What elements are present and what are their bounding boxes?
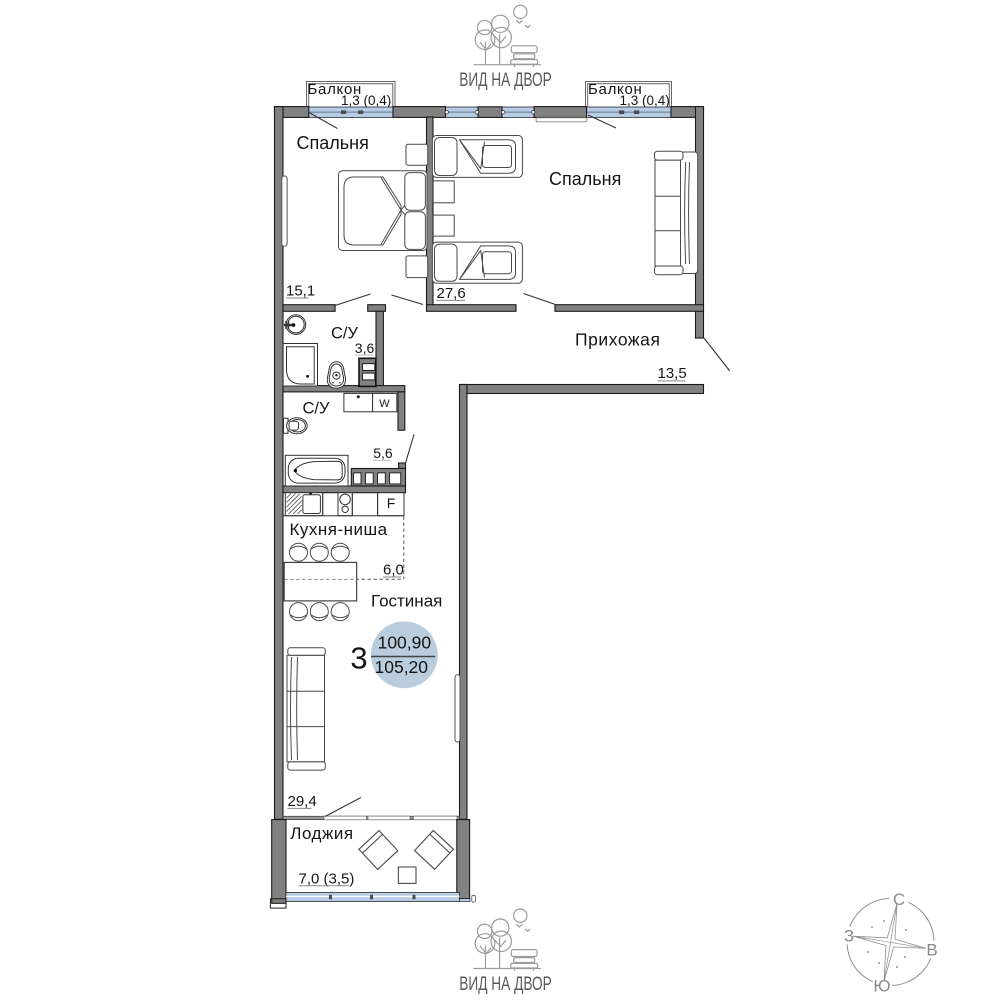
svg-text:С/У: С/У (303, 400, 331, 418)
svg-text:29,4: 29,4 (288, 793, 317, 810)
svg-text:3,6: 3,6 (355, 340, 375, 356)
svg-text:Кухня-ниша: Кухня-ниша (290, 520, 388, 539)
svg-text:100,90: 100,90 (378, 632, 432, 652)
svg-text:7,0 (3,5): 7,0 (3,5) (299, 870, 355, 887)
svg-text:5,6: 5,6 (373, 445, 393, 461)
svg-text:Спальня: Спальня (297, 133, 369, 153)
svg-text:F: F (387, 495, 396, 511)
svg-text:6,0: 6,0 (383, 562, 404, 579)
svg-text:Лоджия: Лоджия (290, 824, 353, 843)
svg-text:13,5: 13,5 (658, 365, 687, 382)
svg-text:Ю: Ю (873, 977, 890, 996)
svg-text:Прихожая: Прихожая (575, 330, 661, 350)
svg-text:W: W (379, 398, 390, 410)
svg-text:С: С (893, 890, 905, 909)
svg-text:В: В (926, 941, 937, 960)
svg-text:3: 3 (350, 641, 367, 676)
svg-text:1,3 (0,4): 1,3 (0,4) (620, 93, 670, 108)
svg-text:З: З (844, 927, 854, 946)
svg-text:27,6: 27,6 (437, 285, 466, 302)
svg-text:105,20: 105,20 (375, 657, 429, 677)
svg-text:15,1: 15,1 (286, 283, 315, 300)
svg-text:Спальня: Спальня (549, 169, 621, 189)
svg-text:1,3 (0,4): 1,3 (0,4) (341, 93, 391, 108)
svg-text:ВИД НА ДВОР: ВИД НА ДВОР (459, 69, 551, 91)
svg-text:Гостиная: Гостиная (371, 592, 442, 611)
svg-text:ВИД НА ДВОР: ВИД НА ДВОР (459, 973, 551, 995)
